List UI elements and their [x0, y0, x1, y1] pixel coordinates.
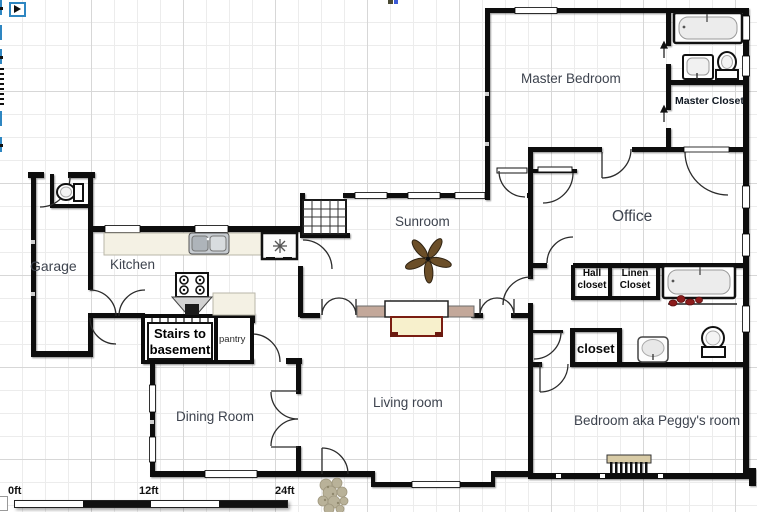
toolbar-button-partial[interactable]: [0, 25, 2, 40]
room-label-stairs-to-basement[interactable]: Stairs to basement: [147, 322, 213, 360]
linen-closet-line2: Closet: [612, 280, 658, 292]
ruler-tick: [0, 88, 4, 90]
bathtub-master-icon[interactable]: [674, 13, 742, 43]
ruler-tick: [0, 98, 4, 100]
shrub-icon[interactable]: [318, 478, 348, 512]
room-label-master-closet[interactable]: Master Closet: [675, 95, 744, 107]
toilet-garage-icon[interactable]: [57, 184, 83, 201]
linen-closet-line1: Linen: [612, 268, 658, 280]
toilet-hall-icon[interactable]: [702, 327, 725, 357]
room-label-dining-room[interactable]: Dining Room: [176, 409, 254, 424]
scale-tick-0ft: 0ft: [8, 485, 21, 497]
range-hood-icon[interactable]: [172, 297, 212, 315]
stairs-up-icon[interactable]: [303, 200, 346, 234]
hall-closet-line2: closet: [574, 280, 610, 292]
room-label-pantry[interactable]: pantry: [219, 334, 245, 345]
toolbar-glyph: [0, 144, 3, 147]
kitchen-sink-icon[interactable]: [189, 233, 229, 254]
bathtub-hall-icon[interactable]: [663, 266, 735, 298]
clipped-marker: [388, 0, 393, 4]
toolbar-button-partial[interactable]: [0, 111, 2, 126]
fireplace-icon[interactable]: [385, 301, 448, 337]
play-icon: [14, 5, 21, 13]
floor-plan-app: Master Bedroom Master Closet Office Sunr…: [0, 0, 757, 512]
stairs-line2: basement: [149, 342, 211, 358]
toolbar-glyph: [0, 56, 3, 59]
ruler-tick: [0, 78, 4, 80]
scale-tick-24ft: 24ft: [275, 485, 295, 497]
toolbar-button-partial[interactable]: [0, 496, 8, 511]
ruler-tick: [0, 68, 4, 70]
scale-tick-12ft: 12ft: [139, 485, 159, 497]
ruler-tick: [0, 73, 4, 75]
stove-icon[interactable]: [176, 273, 208, 297]
room-label-linen-closet[interactable]: Linen Closet: [612, 268, 658, 292]
toilet-master-icon[interactable]: [716, 52, 738, 79]
stairs-line1: Stairs to: [149, 326, 211, 342]
floor-plan-canvas[interactable]: [0, 0, 757, 512]
room-label-hall-closet[interactable]: Hall closet: [574, 268, 610, 292]
ceiling-fan-icon[interactable]: [404, 237, 452, 284]
scale-segment: [151, 501, 219, 507]
ruler-tick: [0, 83, 4, 85]
sink-hall-icon[interactable]: [638, 337, 668, 362]
scale-segment: [15, 501, 83, 507]
room-label-closet[interactable]: closet: [577, 341, 615, 356]
room-label-living-room[interactable]: Living room: [373, 395, 443, 410]
room-label-sunroom[interactable]: Sunroom: [395, 214, 450, 229]
toolbar-glyph: [0, 7, 3, 10]
room-label-master-bedroom[interactable]: Master Bedroom: [521, 71, 621, 86]
room-label-peggys-room[interactable]: Bedroom aka Peggy's room: [574, 413, 740, 428]
hall-closet-line1: Hall: [574, 268, 610, 280]
play-button[interactable]: [9, 2, 26, 17]
scale-segment: [219, 501, 287, 507]
scale-segment: [83, 501, 151, 507]
room-label-office[interactable]: Office: [612, 208, 652, 226]
clipped-marker: [394, 0, 398, 4]
room-label-garage[interactable]: Garage: [30, 258, 77, 274]
fridge-icon[interactable]: [262, 233, 297, 260]
ruler-tick: [0, 103, 4, 105]
ruler-tick: [0, 93, 4, 95]
sink-master-icon[interactable]: [683, 55, 713, 79]
radiator-icon[interactable]: [607, 455, 651, 474]
room-label-kitchen[interactable]: Kitchen: [110, 257, 155, 272]
scale-bar: [14, 500, 288, 508]
